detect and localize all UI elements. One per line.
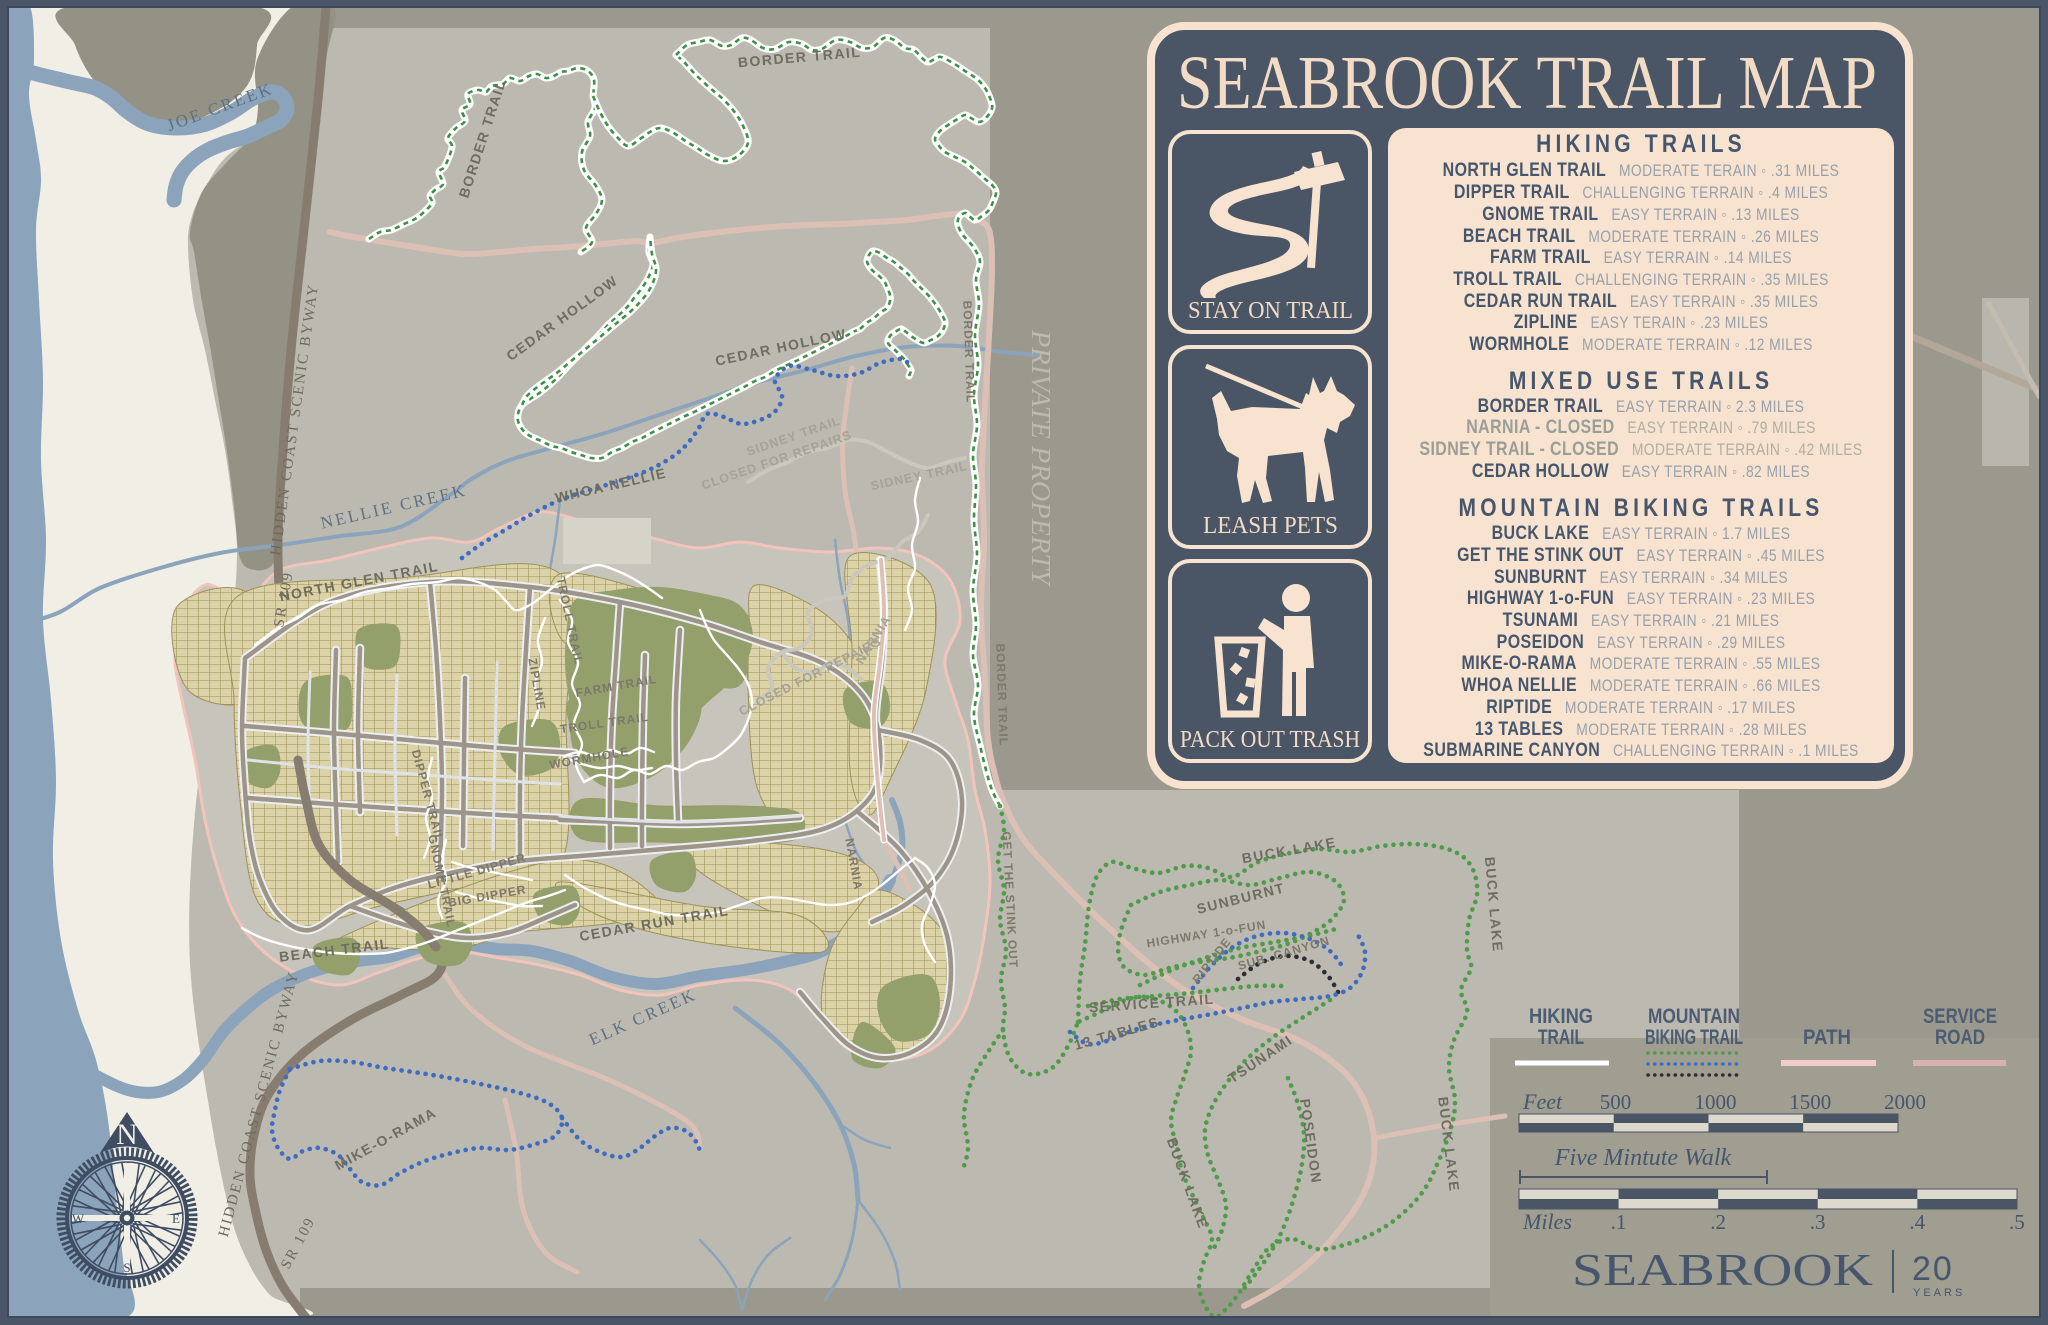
- svg-text:TRAIL: TRAIL: [1538, 1026, 1584, 1049]
- svg-text:BUCK LAKE EASY TERRAIN ◦ 1.7: BUCK LAKE EASY TERRAIN ◦ 1.7 MILES: [1492, 522, 1791, 544]
- svg-text:.3: .3: [1810, 1210, 1826, 1234]
- svg-text:Feet: Feet: [1522, 1089, 1563, 1114]
- svg-text:CEDAR RUN TRAIL EASY TERRAIN: CEDAR RUN TRAIL EASY TERRAIN ◦ .35 MILES: [1464, 290, 1819, 312]
- svg-text:.2: .2: [1710, 1210, 1726, 1234]
- svg-text:ZIPLINE EASY TERAIN ◦ .23 MI: ZIPLINE EASY TERAIN ◦ .23 MILES: [1514, 311, 1769, 333]
- svg-text:POSEIDON EASY TERRAIN ◦ .29: POSEIDON EASY TERRAIN ◦ .29 MILES: [1497, 631, 1786, 653]
- svg-text:BORDER TRAIL EASY TERRAIN ◦: BORDER TRAIL EASY TERRAIN ◦ 2.3 MILES: [1478, 395, 1805, 417]
- svg-text:SEABROOK TRAIL MAP: SEABROOK TRAIL MAP: [1177, 41, 1877, 125]
- svg-text:.1: .1: [1611, 1210, 1627, 1234]
- svg-text:BEACH TRAIL MODERATE TERRAIN: BEACH TRAIL MODERATE TERRAIN ◦ .26 MILES: [1463, 225, 1819, 247]
- svg-text:.4: .4: [1909, 1210, 1925, 1234]
- svg-text:CEDAR HOLLOW EASY TERRAIN ◦: CEDAR HOLLOW EASY TERRAIN ◦ .82 MILES: [1472, 460, 1810, 482]
- svg-text:DIPPER TRAIL CHALLENGING TER: DIPPER TRAIL CHALLENGING TERRAIN ◦ .4 MI…: [1454, 181, 1828, 203]
- svg-text:YEARS: YEARS: [1913, 1287, 1965, 1299]
- svg-text:BIKING TRAIL: BIKING TRAIL: [1645, 1026, 1743, 1049]
- svg-text:S: S: [123, 1260, 130, 1275]
- svg-text:MIXED USE TRAILS: MIXED USE TRAILS: [1509, 366, 1773, 394]
- svg-text:MOUNTAIN BIKING TRAILS: MOUNTAIN BIKING TRAILS: [1459, 493, 1824, 521]
- svg-text:SIDNEY TRAIL - CLOSED MODERA: SIDNEY TRAIL - CLOSED MODERATE TERRAIN ◦…: [1419, 438, 1862, 460]
- svg-text:RIPTIDE MODERATE TERRAIN ◦ .: RIPTIDE MODERATE TERRAIN ◦ .17 MILES: [1486, 696, 1795, 718]
- svg-text:MIKE-O-RAMA MODERATE TERRAIN: MIKE-O-RAMA MODERATE TERRAIN ◦ .55 MILES: [1462, 652, 1821, 674]
- svg-text:HIGHWAY 1-o-FUN EASY TERRAIN: HIGHWAY 1-o-FUN EASY TERRAIN ◦ .23 MILES: [1467, 587, 1815, 609]
- svg-text:NORTH GLEN TRAIL MODERATE TE: NORTH GLEN TRAIL MODERATE TERAIN ◦ .31 M…: [1443, 159, 1840, 181]
- svg-text:STAY ON TRAIL: STAY ON TRAIL: [1188, 298, 1353, 324]
- svg-text:SUNBURNT EASY TERRAIN ◦ .34: SUNBURNT EASY TERRAIN ◦ .34 MILES: [1494, 566, 1788, 588]
- svg-text:HIKING TRAILS: HIKING TRAILS: [1536, 129, 1746, 157]
- svg-text:N: N: [116, 1118, 138, 1151]
- svg-text:WORMHOLE MODERATE TERRAIN ◦: WORMHOLE MODERATE TERRAIN ◦ .12 MILES: [1469, 333, 1812, 355]
- svg-text:LEASH PETS: LEASH PETS: [1203, 513, 1338, 539]
- svg-text:TROLL TRAIL CHALLENGING TERR: TROLL TRAIL CHALLENGING TERRAIN ◦ .35 MI…: [1453, 268, 1828, 290]
- svg-text:NARNIA - CLOSED EASY TERRAIN: NARNIA - CLOSED EASY TERRAIN ◦ .79 MILES: [1466, 416, 1816, 438]
- svg-text:.5: .5: [2009, 1210, 2025, 1234]
- svg-text:PATH: PATH: [1803, 1026, 1851, 1049]
- svg-text:2000: 2000: [1884, 1090, 1926, 1114]
- svg-text:SUBMARINE CANYON CHALLENGING: SUBMARINE CANYON CHALLENGING TERRAIN ◦ .…: [1423, 739, 1858, 761]
- svg-text:20: 20: [1912, 1250, 1954, 1288]
- svg-text:PACK OUT TRASH: PACK OUT TRASH: [1180, 727, 1360, 753]
- svg-text:W: W: [72, 1211, 85, 1226]
- svg-text:E: E: [172, 1211, 180, 1226]
- svg-text:GNOME TRAIL EASY TERRAIN ◦ .: GNOME TRAIL EASY TERRAIN ◦ .13 MILES: [1482, 203, 1799, 225]
- svg-text:Five Mintute Walk: Five Mintute Walk: [1554, 1145, 1732, 1171]
- svg-text:13 TABLES MODERATE TERRAIN ◦: 13 TABLES MODERATE TERRAIN ◦ .28 MILES: [1475, 718, 1807, 740]
- svg-text:FARM TRAIL EASY TERRAIN ◦ .1: FARM TRAIL EASY TERRAIN ◦ .14 MILES: [1490, 246, 1792, 268]
- svg-text:ROAD: ROAD: [1935, 1026, 1985, 1049]
- svg-text:1500: 1500: [1789, 1090, 1831, 1114]
- svg-text:Miles: Miles: [1522, 1209, 1572, 1234]
- svg-text:SEABROOK: SEABROOK: [1572, 1244, 1873, 1295]
- svg-text:500: 500: [1600, 1090, 1632, 1114]
- svg-text:SERVICE: SERVICE: [1923, 1005, 1997, 1028]
- svg-text:HIKING: HIKING: [1529, 1005, 1593, 1028]
- svg-text:GET THE STINK OUT EASY TERRA: GET THE STINK OUT EASY TERRAIN ◦ .45 MIL…: [1457, 544, 1825, 566]
- svg-text:MOUNTAIN: MOUNTAIN: [1648, 1005, 1740, 1028]
- svg-text:WHOA NELLIE MODERATE TERRAIN: WHOA NELLIE MODERATE TERRAIN ◦ .66 MILES: [1461, 674, 1820, 696]
- svg-text:TSUNAMI EASY TERRAIN ◦ .21 M: TSUNAMI EASY TERRAIN ◦ .21 MILES: [1503, 609, 1780, 631]
- svg-text:1000: 1000: [1695, 1090, 1737, 1114]
- svg-text:PRIVATE PROPERTY: PRIVATE PROPERTY: [1026, 329, 1056, 588]
